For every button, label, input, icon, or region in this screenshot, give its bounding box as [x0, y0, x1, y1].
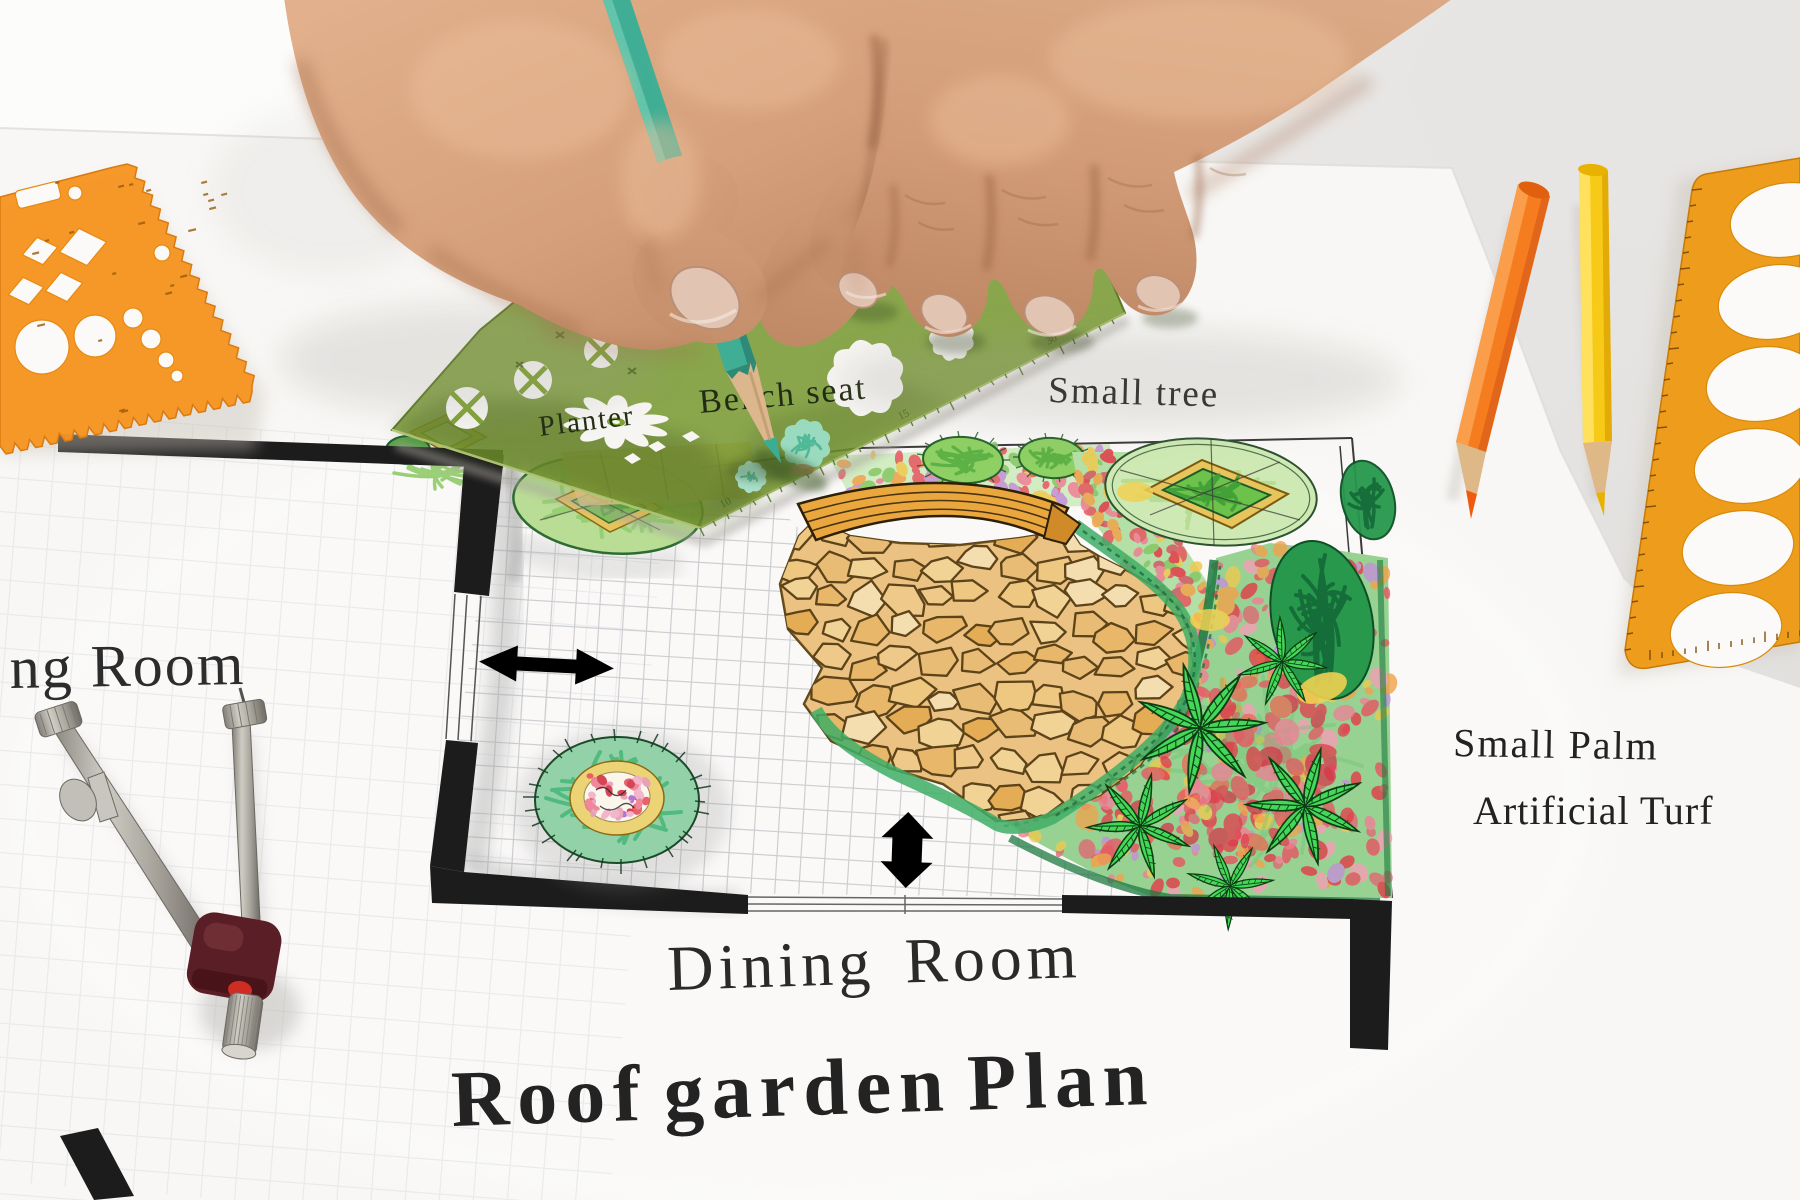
- svg-text:Artificial Turf: Artificial Turf: [1473, 788, 1714, 833]
- svg-text:ng Room: ng Room: [9, 631, 246, 701]
- svg-text:Small Palm: Small Palm: [1453, 720, 1659, 769]
